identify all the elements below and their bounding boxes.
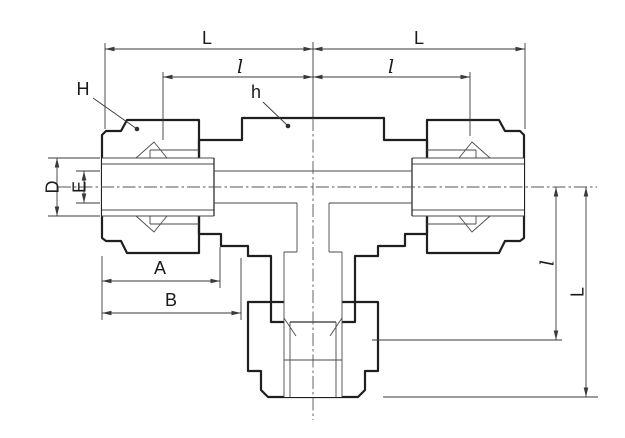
dim-label-h: h bbox=[251, 82, 261, 102]
engineering-drawing: L L l l H h D E A B l L bbox=[0, 0, 625, 438]
dim-label-L-right: L bbox=[567, 287, 587, 297]
dim-label-E: E bbox=[69, 181, 89, 193]
dim-label-H: H bbox=[77, 79, 90, 99]
dim-label-B: B bbox=[165, 290, 177, 310]
dim-label-L-top-right: L bbox=[414, 28, 424, 48]
dim-label-l-right: l bbox=[537, 260, 559, 266]
dim-label-L-top-left: L bbox=[202, 28, 212, 48]
dim-label-l-top-right: l bbox=[388, 56, 394, 78]
tee-fitting-cross-section: L L l l H h D E A B l L bbox=[0, 0, 625, 438]
dim-label-l-top-left: l bbox=[237, 56, 243, 78]
dim-label-A: A bbox=[154, 258, 166, 278]
dim-label-D: D bbox=[42, 181, 62, 194]
